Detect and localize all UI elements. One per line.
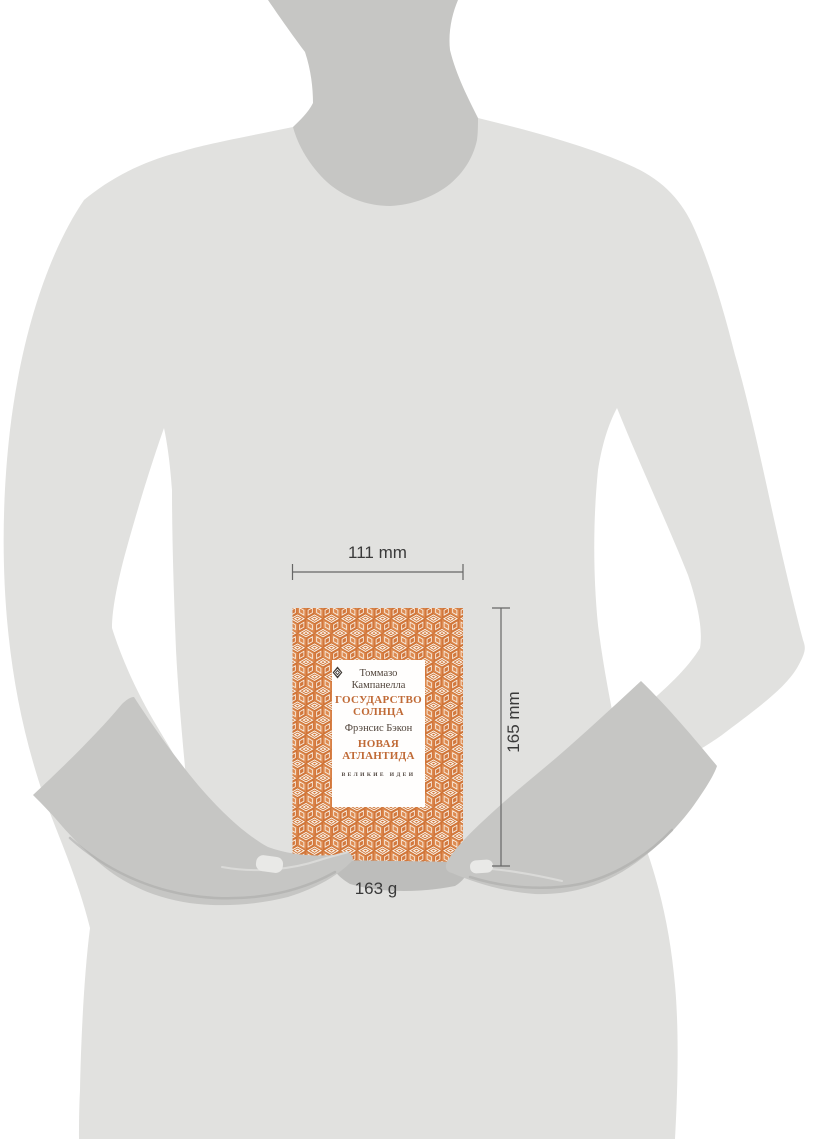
book-title-bottom: НОВАЯ АТЛАНТИДА — [332, 738, 425, 762]
silhouette-graphic — [0, 0, 820, 1139]
book-cover-label: Томмазо Кампанелла ГОСУДАРСТВО СОЛНЦА Фр… — [332, 660, 425, 807]
product-dimensions-visualization: 111 mm 165 mm 163 g Томмазо Кампанелла Г… — [0, 0, 820, 1139]
book-author-top: Томмазо Кампанелла — [332, 668, 425, 691]
right-thumbnail — [470, 859, 494, 874]
book-author-bottom: Фрэнсис Бэкон — [332, 723, 425, 735]
height-dimension-label: 165 mm — [504, 681, 524, 763]
book-series-name: ВЕЛИКИЕ ИДЕИ — [332, 772, 425, 779]
book-title-top: ГОСУДАРСТВО СОЛНЦА — [332, 694, 425, 718]
weight-label: 163 g — [292, 879, 460, 899]
width-dimension-label: 111 mm — [292, 543, 463, 563]
diamond-ornament-icon — [332, 666, 343, 679]
